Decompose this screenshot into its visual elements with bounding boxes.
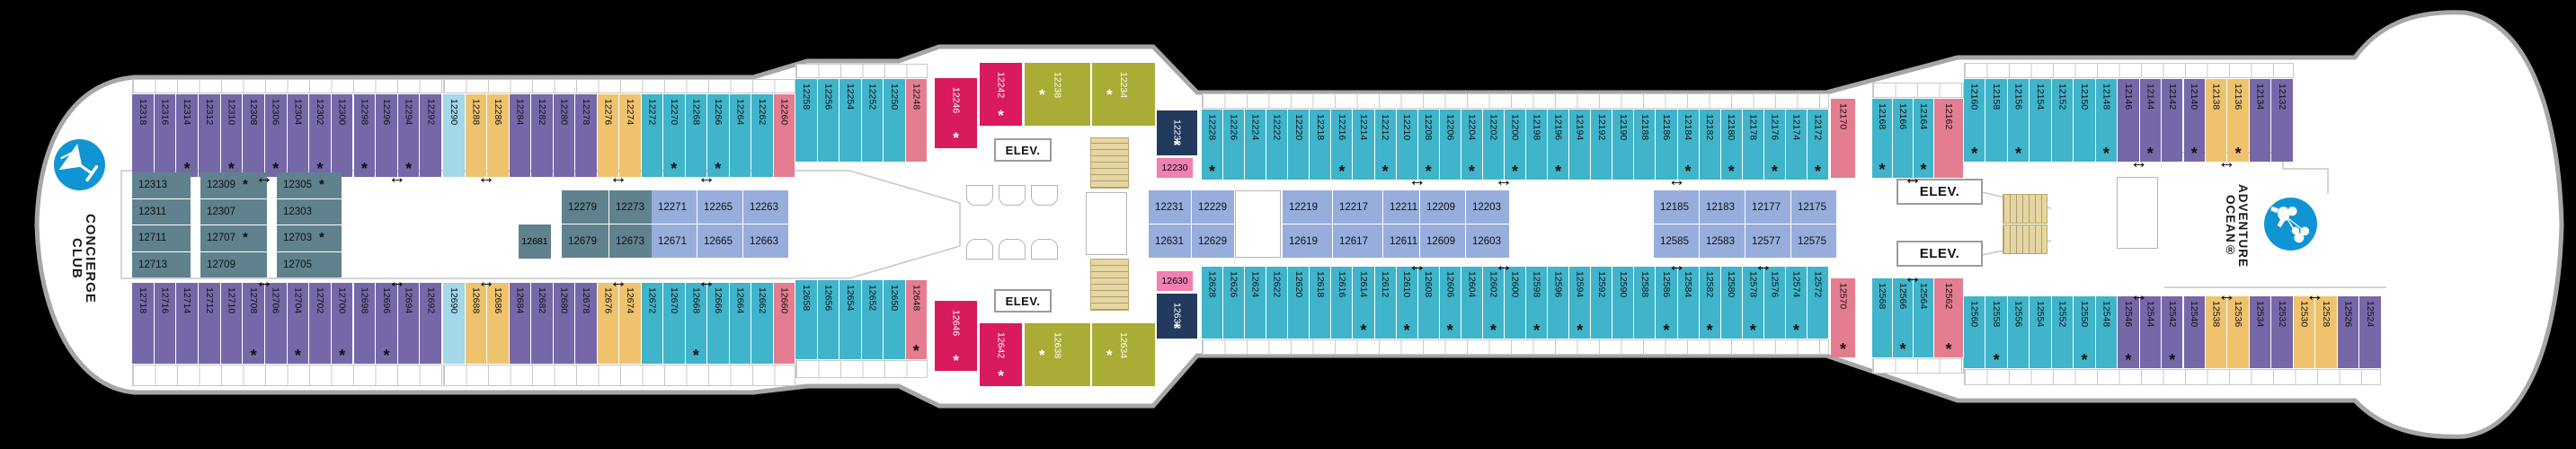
cabin-number: 12609 [1426, 236, 1455, 247]
cabin-number: 12568 [1877, 278, 1888, 309]
cabin-12290[interactable]: 12290 [443, 94, 465, 177]
cabin-12713[interactable]: 12713 [132, 252, 191, 278]
cabin-12166[interactable]: 12166 [1893, 99, 1913, 178]
cabin-number: 12684 [514, 283, 525, 313]
cabin-12271[interactable]: 12271 [652, 190, 697, 224]
cabin-12602[interactable]: 12602* [1483, 267, 1504, 339]
cabin-12707[interactable]: 12707* [200, 225, 267, 251]
cabin-12265[interactable]: 12265 [697, 190, 742, 224]
cabin-12631[interactable]: 12631 [1149, 224, 1191, 258]
cabin-12692[interactable]: 12692 [420, 283, 441, 364]
cabin-12612[interactable]: 12612 [1375, 267, 1396, 339]
cabin-12198[interactable]: 12198 [1526, 110, 1547, 180]
cabin-number: 12308 [248, 94, 259, 125]
cabin-12638[interactable]: 12638* [1025, 323, 1090, 386]
cabin-12598[interactable]: 12598* [1526, 267, 1547, 339]
cabin-12312[interactable]: 12312 [199, 94, 220, 177]
cabin-12550[interactable]: 12550* [2074, 296, 2094, 368]
cabin-12196[interactable]: 12196* [1548, 110, 1568, 180]
connecting-rooms-arrow-icon: ↔ [253, 276, 275, 288]
cabin-12150[interactable]: 12150 [2074, 79, 2094, 162]
cabin-12582[interactable]: 12582* [1700, 267, 1720, 339]
cabin-12132[interactable]: 12132 [2271, 79, 2292, 162]
cabin-12270[interactable]: 12270* [663, 94, 685, 177]
cabin-12234[interactable]: 12234* [1092, 63, 1155, 126]
cabin-12574[interactable]: 12574* [1786, 267, 1807, 339]
cabin-12164[interactable]: 12164* [1914, 99, 1933, 178]
cabin-12568[interactable]: 12568 [1872, 278, 1892, 357]
cabin-12673[interactable]: 12673 [609, 224, 653, 258]
cabin-12262[interactable]: 12262 [751, 94, 773, 177]
martini-icon [54, 139, 105, 190]
cabin-12700[interactable]: 12700* [332, 283, 353, 364]
cabin-12134[interactable]: 12134 [2250, 79, 2270, 162]
cabin-12528[interactable]: 12528 [2315, 296, 2336, 368]
cabin-number: 12714 [182, 283, 192, 313]
cabin-12603[interactable]: 12603 [1466, 224, 1509, 258]
cabin-number: 12265 [704, 202, 733, 213]
cabin-12190[interactable]: 12190 [1612, 110, 1633, 180]
cabin-12217[interactable]: 12217 [1333, 190, 1382, 224]
adventure-ocean-badge [2264, 198, 2317, 251]
cabin-number: 12307 [207, 207, 235, 217]
cabin-12142[interactable]: 12142 [2162, 79, 2182, 162]
cabin-12152[interactable]: 12152 [2052, 79, 2073, 162]
cabin-number: 12196 [1553, 110, 1564, 140]
cabin-12532[interactable]: 12532 [2271, 296, 2292, 368]
cabin-number: 12634 [1118, 323, 1129, 358]
cabin-number: 12177 [1752, 202, 1781, 213]
cabin-12219[interactable]: 12219 [1283, 190, 1332, 224]
cabin-number: 12302 [315, 94, 325, 125]
cabin-12684[interactable]: 12684 [510, 283, 531, 364]
cabin-number: 12654 [845, 280, 856, 311]
cabin-12577[interactable]: 12577 [1745, 224, 1790, 258]
cabin-12288[interactable]: 12288 [466, 94, 487, 177]
cabin-12681[interactable]: 12681 [519, 224, 551, 259]
cabin-12302[interactable]: 12302* [309, 94, 331, 177]
cabin-12628[interactable]: 12628 [1202, 267, 1222, 339]
cabin-12305[interactable]: 12305* [277, 172, 342, 198]
cabin-12585[interactable]: 12585 [1654, 224, 1699, 258]
cabin-12230[interactable]: 12230 [1157, 158, 1193, 178]
cabin-12656[interactable]: 12656 [818, 280, 839, 359]
cabin-12144[interactable]: 12144* [2140, 79, 2161, 162]
cabin-12246[interactable]: 12246* [935, 78, 977, 148]
cabin-12280[interactable]: 12280 [554, 94, 575, 177]
cabin-12304[interactable]: 12304 [288, 94, 309, 177]
cabin-12140[interactable]: 12140* [2184, 79, 2205, 162]
accessible-star-icon: * [332, 349, 353, 362]
cabin-12540[interactable]: 12540 [2184, 296, 2205, 368]
cabin-12183[interactable]: 12183 [1700, 190, 1745, 224]
cabin-12652[interactable]: 12652 [862, 280, 884, 359]
accessible-star-icon: * [1039, 89, 1045, 101]
accessible-star-icon: * [1743, 324, 1763, 337]
cabin-12292[interactable]: 12292 [420, 94, 441, 177]
cabin-12586[interactable]: 12586* [1656, 267, 1676, 339]
cabin-12272[interactable]: 12272 [642, 94, 663, 177]
cabin-number: 12692 [425, 283, 436, 313]
cabin-12185[interactable]: 12185 [1654, 190, 1699, 224]
cabin-number: 12570 [1838, 278, 1849, 309]
cabin-number: 12154 [2035, 79, 2046, 110]
cabin-12170[interactable]: 12170 [1831, 99, 1855, 178]
cabin-12174[interactable]: 12174 [1786, 110, 1807, 180]
cabin-12618[interactable]: 12618 [1310, 267, 1330, 339]
cabin-12608[interactable]: 12608 [1418, 267, 1439, 339]
cabin-12654[interactable]: 12654 [839, 280, 861, 359]
cabin-12307[interactable]: 12307 [200, 199, 267, 225]
cabin-number: 12707 [207, 233, 235, 243]
cabin-12702[interactable]: 12702 [309, 283, 331, 364]
cabin-12606[interactable]: 12606* [1440, 267, 1461, 339]
cabin-12560[interactable]: 12560 [1964, 296, 1985, 368]
cabin-12203[interactable]: 12203 [1466, 190, 1509, 224]
cabin-12160[interactable]: 12160* [1964, 79, 1985, 162]
cabin-12646[interactable]: 12646* [935, 301, 977, 371]
cabin-12576[interactable]: 12576 [1764, 267, 1785, 339]
cabin-12176[interactable]: 12176* [1764, 110, 1785, 180]
cabin-12575[interactable]: 12575 [1791, 224, 1836, 258]
cabin-12175[interactable]: 12175 [1791, 190, 1836, 224]
cabin-12552[interactable]: 12552 [2052, 296, 2073, 368]
cabin-12556[interactable]: 12556 [2008, 296, 2029, 368]
cabin-12168[interactable]: 12168* [1872, 99, 1892, 178]
cabin-number: 12206 [1444, 110, 1455, 140]
cabin-12274[interactable]: 12274 [619, 94, 641, 177]
cabin-12313[interactable]: 12313 [132, 172, 191, 198]
cabin-12620[interactable]: 12620 [1288, 267, 1309, 339]
cabin-12264[interactable]: 12264 [730, 94, 751, 177]
cabin-12276[interactable]: 12276 [598, 94, 619, 177]
cabin-12542[interactable]: 12542* [2162, 296, 2182, 368]
cabin-12660[interactable]: 12660 [774, 283, 795, 364]
cabin-12706[interactable]: 12706 [265, 283, 287, 364]
cabin-number: 12242 [996, 63, 1007, 98]
cabin-12688[interactable]: 12688 [466, 283, 487, 364]
connecting-rooms-arrow-icon: ↔ [2216, 289, 2237, 302]
cabin-12202[interactable]: 12202 [1483, 110, 1504, 180]
cabin-12177[interactable]: 12177 [1745, 190, 1790, 224]
cabin-12671[interactable]: 12671 [652, 224, 697, 258]
cabin-12194[interactable]: 12194 [1569, 110, 1590, 180]
cabin-number: 12136 [2233, 79, 2243, 110]
cabin-number: 12631 [1155, 236, 1184, 247]
cabin-12220[interactable]: 12220 [1288, 110, 1309, 180]
cabin-12238[interactable]: 12238* [1025, 63, 1090, 126]
cabin-strip-top-12170: 12170 [1831, 99, 1856, 178]
cabin-12204[interactable]: 12204* [1461, 110, 1482, 180]
cabin-12148[interactable]: 12148* [2096, 79, 2117, 162]
cabin-12138[interactable]: 12138 [2206, 79, 2226, 162]
cabin-12278[interactable]: 12278 [575, 94, 597, 177]
cabin-12666[interactable]: 12666 [707, 283, 729, 364]
cabin-12690[interactable]: 12690 [443, 283, 465, 364]
cabin-12558[interactable]: 12558* [1985, 296, 2006, 368]
connecting-rooms-arrow-icon: ↔ [2216, 156, 2237, 169]
concierge-club-badge [54, 139, 105, 190]
cabin-12306[interactable]: 12306* [265, 94, 287, 177]
cabin-12546[interactable]: 12546* [2118, 296, 2138, 368]
cabin-12703[interactable]: 12703* [277, 225, 342, 251]
cabin-12648[interactable]: 12648* [906, 280, 928, 359]
cabin-number: 12234 [1118, 63, 1129, 98]
cabin-number: 12612 [1380, 267, 1390, 297]
cabin-12583[interactable]: 12583 [1700, 224, 1745, 258]
cabin-12672[interactable]: 12672 [642, 283, 663, 364]
cabin-12626[interactable]: 12626 [1223, 267, 1244, 339]
cabin-12534[interactable]: 12534 [2250, 296, 2270, 368]
cabin-12184[interactable]: 12184* [1678, 110, 1699, 180]
cabin-12682[interactable]: 12682 [531, 283, 553, 364]
cabin-number: 12132 [2277, 79, 2287, 110]
cabin-12216[interactable]: 12216* [1331, 110, 1352, 180]
cabin-strip-bottom-12570: 12570* [1831, 278, 1856, 357]
cabin-12619[interactable]: 12619 [1283, 224, 1332, 258]
cabin-12526[interactable]: 12526 [2338, 296, 2358, 368]
cabin-12206[interactable]: 12206 [1440, 110, 1461, 180]
accessible-star-icon: * [1934, 343, 1963, 356]
cabin-12664[interactable]: 12664 [730, 283, 751, 364]
cabin-12192[interactable]: 12192 [1591, 110, 1612, 180]
cabin-12711[interactable]: 12711 [132, 225, 191, 251]
cabin-12658[interactable]: 12658 [795, 280, 817, 359]
cabin-number: 12273 [616, 202, 644, 213]
cabin-12544[interactable]: 12544 [2140, 296, 2161, 368]
cabin-12266[interactable]: 12266* [707, 94, 729, 177]
cabin-number: 12548 [2101, 296, 2111, 327]
cabin-12256[interactable]: 12256 [818, 79, 839, 162]
cabin-12668[interactable]: 12668* [686, 283, 707, 364]
cabin-12530[interactable]: 12530 [2294, 296, 2314, 368]
cabin-12232[interactable]: 12232* [1157, 110, 1197, 155]
accessible-star-icon: * [1375, 165, 1396, 178]
cabin-number: 12170 [1838, 99, 1849, 129]
cabin-12650[interactable]: 12650 [884, 280, 905, 359]
cabin-12678[interactable]: 12678 [575, 283, 597, 364]
cabin-12254[interactable]: 12254 [839, 79, 861, 162]
cabin-number: 12263 [750, 202, 778, 213]
cabin-12212[interactable]: 12212* [1375, 110, 1396, 180]
cabin-12136[interactable]: 12136* [2227, 79, 2248, 162]
cabin-12250[interactable]: 12250 [884, 79, 905, 162]
cabin-12548[interactable]: 12548 [2096, 296, 2117, 368]
cabin-12282[interactable]: 12282 [531, 94, 553, 177]
cabin-12178[interactable]: 12178 [1743, 110, 1763, 180]
cabin-12562[interactable]: 12562* [1934, 278, 1963, 357]
cabin-12594[interactable]: 12594* [1569, 267, 1590, 339]
cabin-12172[interactable]: 12172* [1808, 110, 1828, 180]
cabin-12228[interactable]: 12228* [1202, 110, 1222, 180]
cabin-number: 12274 [625, 94, 635, 125]
elevator-label: ELEV. [1006, 295, 1041, 308]
cabin-number: 12646 [951, 301, 962, 336]
cabin-12696[interactable]: 12696* [376, 283, 397, 364]
cabin-number: 12618 [1315, 267, 1326, 297]
cabin-12674[interactable]: 12674 [619, 283, 641, 364]
cabin-12296[interactable]: 12296 [376, 94, 397, 177]
cabin-12705[interactable]: 12705 [277, 252, 342, 278]
cabin-number: 12664 [734, 283, 745, 313]
cabin-12252[interactable]: 12252 [862, 79, 884, 162]
cabin-number: 12260 [778, 94, 789, 125]
cabin-12663[interactable]: 12663 [743, 224, 788, 258]
cabin-number: 12309 [207, 180, 235, 190]
cabin-12680[interactable]: 12680 [554, 283, 575, 364]
cabin-12686[interactable]: 12686 [487, 283, 509, 364]
cabin-12273[interactable]: 12273 [609, 190, 653, 224]
cabin-12279[interactable]: 12279 [562, 190, 608, 224]
cabin-12617[interactable]: 12617 [1333, 224, 1382, 258]
cabin-12554[interactable]: 12554 [2030, 296, 2050, 368]
cabin-12708[interactable]: 12708* [243, 283, 264, 364]
cabin-12614[interactable]: 12614* [1353, 267, 1373, 339]
elevator-label-box: ELEV. [1896, 241, 1983, 267]
cabin-12229[interactable]: 12229 [1192, 190, 1234, 224]
cabin-12600[interactable]: 12600 [1505, 267, 1525, 339]
cabin-12578[interactable]: 12578* [1743, 267, 1763, 339]
cabin-12182[interactable]: 12182 [1700, 110, 1720, 180]
cabin-12231[interactable]: 12231 [1149, 190, 1191, 224]
cabin-12258[interactable]: 12258 [795, 79, 817, 162]
cabin-12218[interactable]: 12218 [1310, 110, 1330, 180]
cabin-12572[interactable]: 12572 [1808, 267, 1828, 339]
cabin-12538[interactable]: 12538 [2206, 296, 2226, 368]
cabin-12260[interactable]: 12260 [774, 94, 795, 177]
cabin-12662[interactable]: 12662 [751, 283, 773, 364]
cabin-12222[interactable]: 12222 [1266, 110, 1287, 180]
cabin-12316[interactable]: 12316 [155, 94, 176, 177]
cabin-12632[interactable]: 12632* [1157, 294, 1197, 339]
cabin-12718[interactable]: 12718 [132, 283, 154, 364]
cabin-12268[interactable]: 12268 [686, 94, 707, 177]
cabin-12300[interactable]: 12300 [332, 94, 353, 177]
cabin-number: 12194 [1575, 110, 1586, 140]
cabin-12180[interactable]: 12180* [1721, 110, 1742, 180]
cabin-number: 12310 [226, 94, 236, 125]
cabin-number: 12704 [292, 283, 303, 313]
cabin-12162[interactable]: 12162 [1934, 99, 1963, 178]
cabin-number: 12619 [1289, 236, 1318, 247]
accessible-star-icon: * [243, 180, 248, 189]
cabin-12629[interactable]: 12629 [1192, 224, 1234, 258]
cabin-number: 12648 [910, 280, 921, 311]
cabin-12665[interactable]: 12665 [697, 224, 742, 258]
cabin-12242[interactable]: 12242* [980, 63, 1022, 126]
cabin-strip-top-midaft: 1229012288↔12286122841228212280122781227… [443, 94, 795, 177]
cabin-number: 12254 [845, 79, 856, 110]
cabin-12592[interactable]: 12592 [1591, 267, 1612, 339]
cabin-12318[interactable]: 12318 [132, 94, 154, 177]
cabin-12642[interactable]: 12642* [980, 323, 1022, 386]
cabin-12314[interactable]: 12314* [176, 94, 198, 177]
cabin-number: 12700 [337, 283, 348, 313]
cabin-12611[interactable]: 12611 [1383, 224, 1419, 258]
cabin-12308[interactable]: 12308 [243, 94, 264, 177]
cabin-12604[interactable]: 12604 [1461, 267, 1482, 339]
cabin-number: 12200 [1510, 110, 1521, 140]
cabin-12704[interactable]: 12704* [288, 283, 309, 364]
cabin-12676[interactable]: 12676 [598, 283, 619, 364]
cabin-12536[interactable]: 12536 [2227, 296, 2248, 368]
cabin-12584[interactable]: 12584 [1678, 267, 1699, 339]
cabin-number: 12217 [1339, 202, 1368, 213]
cabin-12712[interactable]: 12712 [199, 283, 220, 364]
cabin-12590[interactable]: 12590 [1612, 267, 1633, 339]
cabin-number: 12278 [581, 94, 591, 125]
cabin-12610[interactable]: 12610* [1397, 267, 1417, 339]
mid-ship-room [1086, 192, 1127, 255]
cabin-12154[interactable]: 12154 [2030, 79, 2050, 162]
cabin-number: 12216 [1337, 110, 1347, 140]
cabin-12146[interactable]: 12146 [2118, 79, 2138, 162]
cabin-number: 12178 [1747, 110, 1758, 140]
cabin-12186[interactable]: 12186 [1656, 110, 1676, 180]
cabin-12694[interactable]: 12694 [398, 283, 420, 364]
cabin-12214[interactable]: 12214 [1353, 110, 1373, 180]
cabin-12622[interactable]: 12622 [1266, 267, 1287, 339]
cabin-12524[interactable]: 12524 [2359, 296, 2380, 368]
cabin-12208[interactable]: 12208* [1418, 110, 1439, 180]
cabin-12211[interactable]: 12211 [1383, 190, 1419, 224]
cabin-12158[interactable]: 12158 [1985, 79, 2006, 162]
cabin-12710[interactable]: 12710 [221, 283, 243, 364]
cabin-12248[interactable]: 12248 [906, 79, 928, 162]
cabin-12226[interactable]: 12226 [1223, 110, 1244, 180]
cabin-12294[interactable]: 12294* [398, 94, 420, 177]
cabin-12284[interactable]: 12284 [510, 94, 531, 177]
cabin-12298[interactable]: 12298* [354, 94, 376, 177]
accessible-star-icon: * [1786, 324, 1807, 337]
cabin-12670[interactable]: 12670 [663, 283, 685, 364]
cabin-number: 12144 [2145, 79, 2155, 110]
cabin-strip-top-fwd1: 12168*12166↔12164*12162 [1872, 99, 1964, 178]
cabin-12310[interactable]: 12310* [221, 94, 243, 177]
cabin-12570[interactable]: 12570* [1831, 278, 1855, 357]
cabin-12716[interactable]: 12716 [155, 283, 176, 364]
cabin-12609[interactable]: 12609 [1420, 224, 1465, 258]
cabin-12188[interactable]: 12188 [1634, 110, 1655, 180]
cabin-12311[interactable]: 12311 [132, 199, 191, 225]
cabin-12580[interactable]: 12580 [1721, 267, 1742, 339]
cabin-12624[interactable]: 12624 [1245, 267, 1266, 339]
cabin-12224[interactable]: 12224 [1245, 110, 1266, 180]
cabin-12630[interactable]: 12630 [1157, 271, 1193, 291]
cabin-12156[interactable]: 12156* [2008, 79, 2029, 162]
cabin-12634[interactable]: 12634* [1092, 323, 1155, 386]
cabin-12210[interactable]: 12210 [1397, 110, 1417, 180]
cabin-12714[interactable]: 12714 [176, 283, 198, 364]
cabin-12263[interactable]: 12263 [743, 190, 788, 224]
cabin-number: 12272 [646, 94, 657, 125]
cabin-12564[interactable]: 12564 [1914, 278, 1933, 357]
cabin-number: 12140 [2189, 79, 2199, 110]
cabin-12588[interactable]: 12588 [1634, 267, 1655, 339]
cabin-number: 12271 [658, 202, 687, 213]
cabin-number: 12671 [658, 236, 687, 247]
cabin-12698[interactable]: 12698 [354, 283, 376, 364]
cabin-12209[interactable]: 12209 [1420, 190, 1465, 224]
cabin-12616[interactable]: 12616 [1331, 267, 1352, 339]
cabin-12679[interactable]: 12679 [562, 224, 608, 258]
cabin-12566[interactable]: 12566* [1893, 278, 1913, 357]
cabin-12596[interactable]: 12596 [1548, 267, 1568, 339]
cabin-12303[interactable]: 12303 [277, 199, 342, 225]
stairs [2003, 194, 2047, 224]
cabin-12200[interactable]: 12200* [1505, 110, 1525, 180]
cabin-12286[interactable]: 12286 [487, 94, 509, 177]
